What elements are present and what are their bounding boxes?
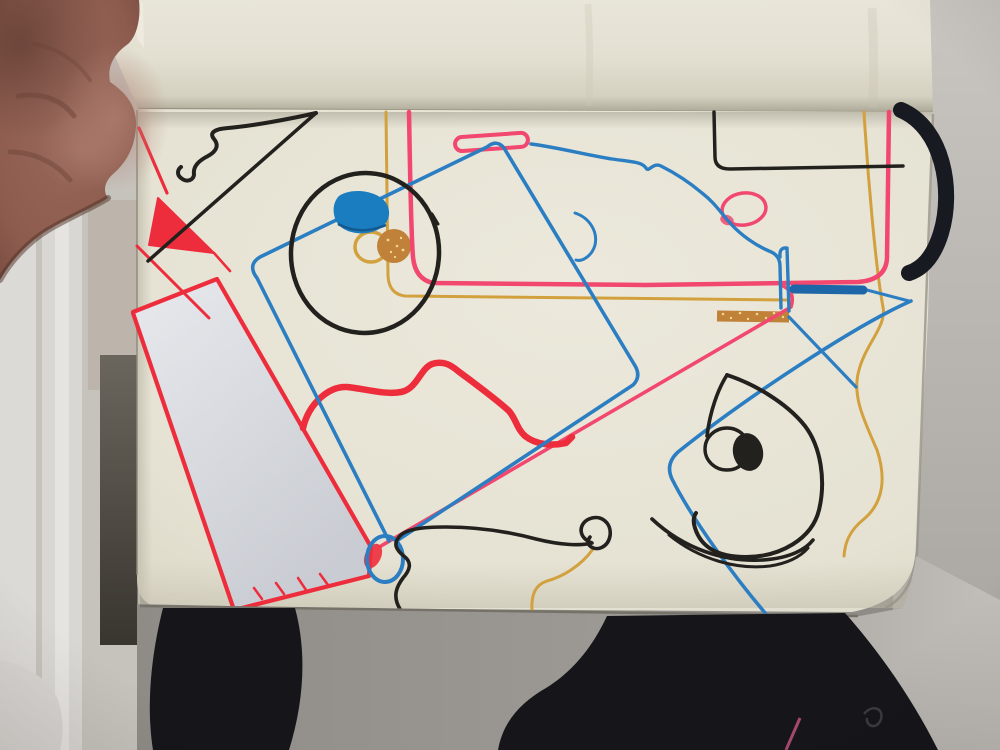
vignette xyxy=(0,0,1000,750)
sketchbook-photo xyxy=(0,0,1000,750)
photo xyxy=(0,0,1000,750)
